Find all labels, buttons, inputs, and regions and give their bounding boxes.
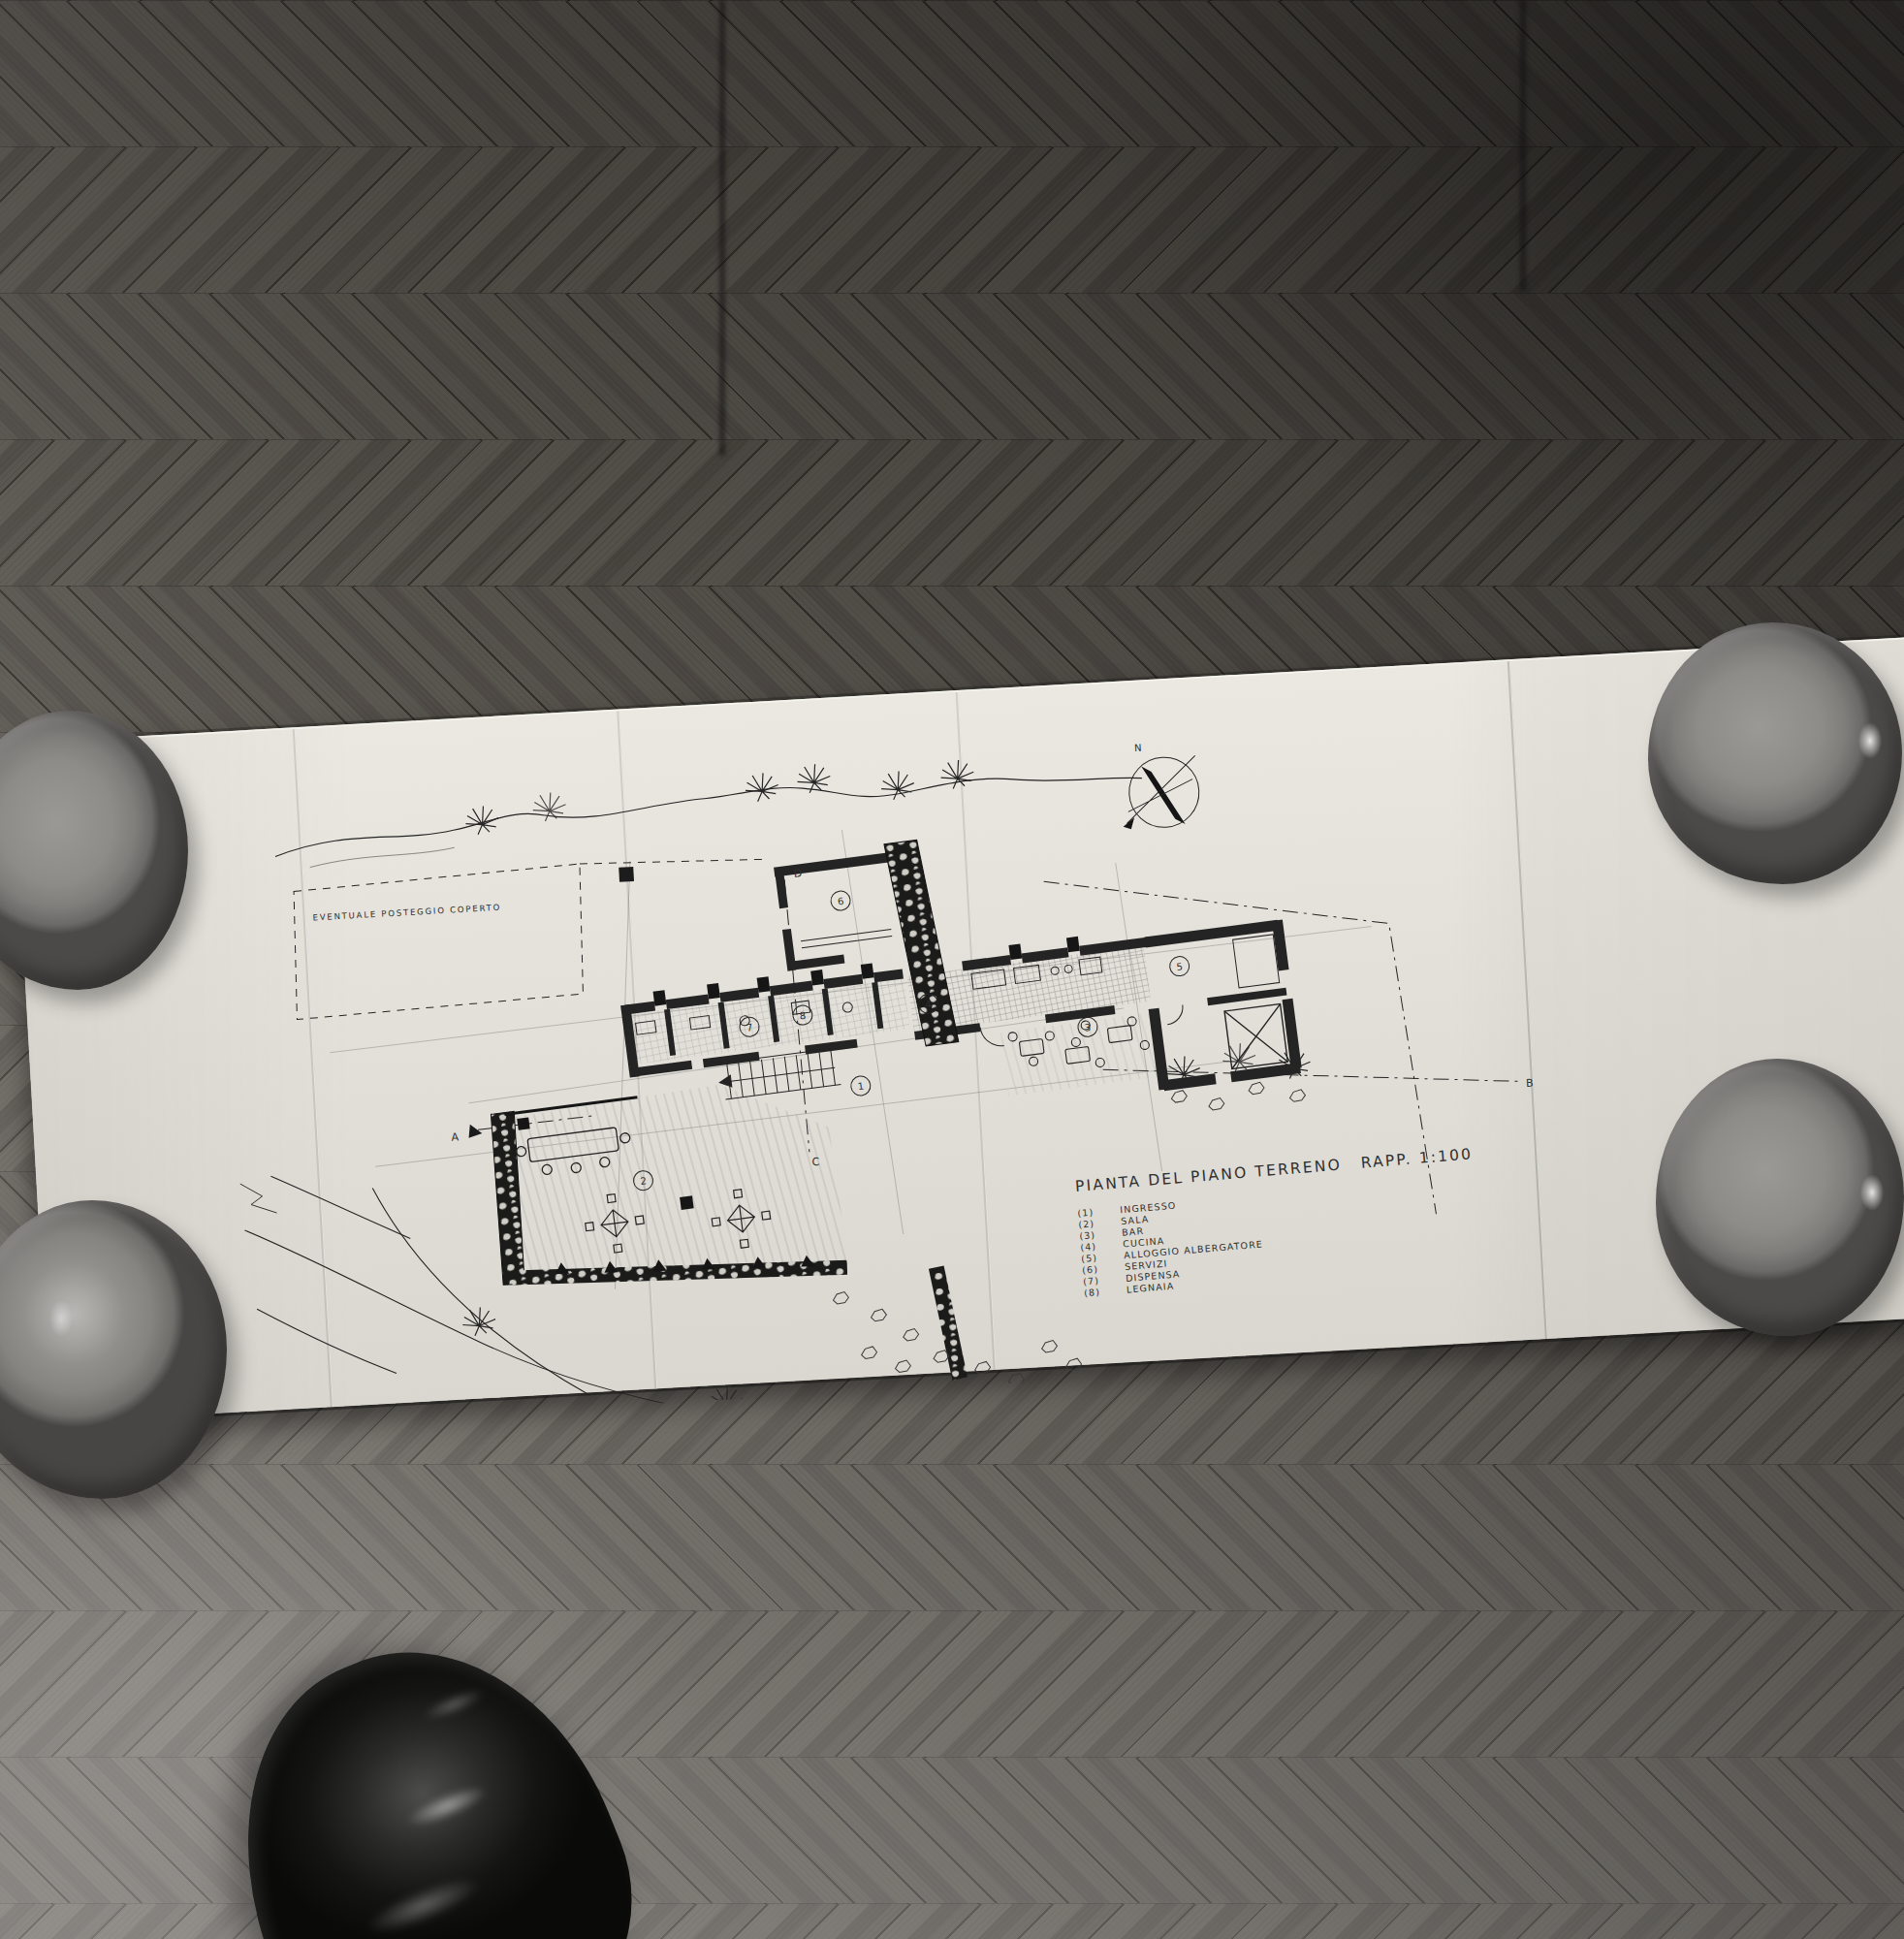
- plan-title: PIANTA DEL PIANO TERRENORAPP. 1:100: [1074, 1145, 1473, 1195]
- legend-item: (5)ALLOGGIO ALBERGATORE: [1081, 1239, 1263, 1264]
- site-post-marker: [619, 867, 634, 882]
- construction-lines: [319, 801, 1389, 1305]
- section-marker-b: B: [1526, 1076, 1534, 1089]
- building-plan: 1 2 3 4 5 6 7 8: [454, 795, 1318, 1312]
- drawing-paper: N EVENTUALE POSTEGGIO COPERTO: [12, 627, 1904, 1423]
- plank-seam-shadow: [719, 0, 725, 456]
- plan-title-text: PIANTA DEL PIANO TERRENO: [1074, 1156, 1342, 1195]
- room-label-6: 6: [830, 890, 851, 911]
- section-marker-a: A: [451, 1130, 460, 1143]
- parking-boundary-dashed: EVENTUALE POSTEGGIO COPERTO: [289, 853, 773, 1019]
- site-note-label: EVENTUALE POSTEGGIO COPERTO: [312, 903, 501, 923]
- north-compass-icon: N: [1119, 739, 1201, 829]
- terrace-post: [680, 1195, 694, 1210]
- ceramic-bowl-top-right: [1648, 622, 1902, 884]
- room-label-1: 1: [850, 1075, 872, 1097]
- grass-tufts: [463, 755, 975, 835]
- room-label-5: 5: [1168, 955, 1190, 976]
- terrace-post: [517, 1117, 529, 1129]
- svg-text:6: 6: [837, 896, 844, 907]
- floor-plan-drawing: N EVENTUALE POSTEGGIO COPERTO: [159, 692, 1609, 1429]
- wing-fixture-lines: [801, 930, 892, 948]
- plan-scale-label: RAPP. 1:100: [1360, 1145, 1474, 1171]
- section-marker-d: D: [793, 867, 802, 879]
- legend: (1)INGRESSO (2)SALA (3)BAR (4)CUCINA (5)…: [1077, 1193, 1266, 1299]
- svg-text:1: 1: [857, 1081, 865, 1093]
- compass-north-label: N: [1134, 743, 1142, 753]
- photograph-scene: N EVENTUALE POSTEGGIO COPERTO: [0, 0, 1904, 1939]
- garden-stone-wall: [936, 1266, 960, 1380]
- rocks: [822, 1080, 1320, 1395]
- title-block: PIANTA DEL PIANO TERRENORAPP. 1:100 (1)I…: [1074, 1145, 1481, 1298]
- section-marker-c: C: [811, 1156, 820, 1168]
- svg-text:5: 5: [1176, 961, 1184, 972]
- ceramic-bowl-bottom-right: [1656, 1059, 1904, 1336]
- plank-seam-shadow: [1520, 0, 1526, 291]
- site-contour-line: [271, 747, 1144, 870]
